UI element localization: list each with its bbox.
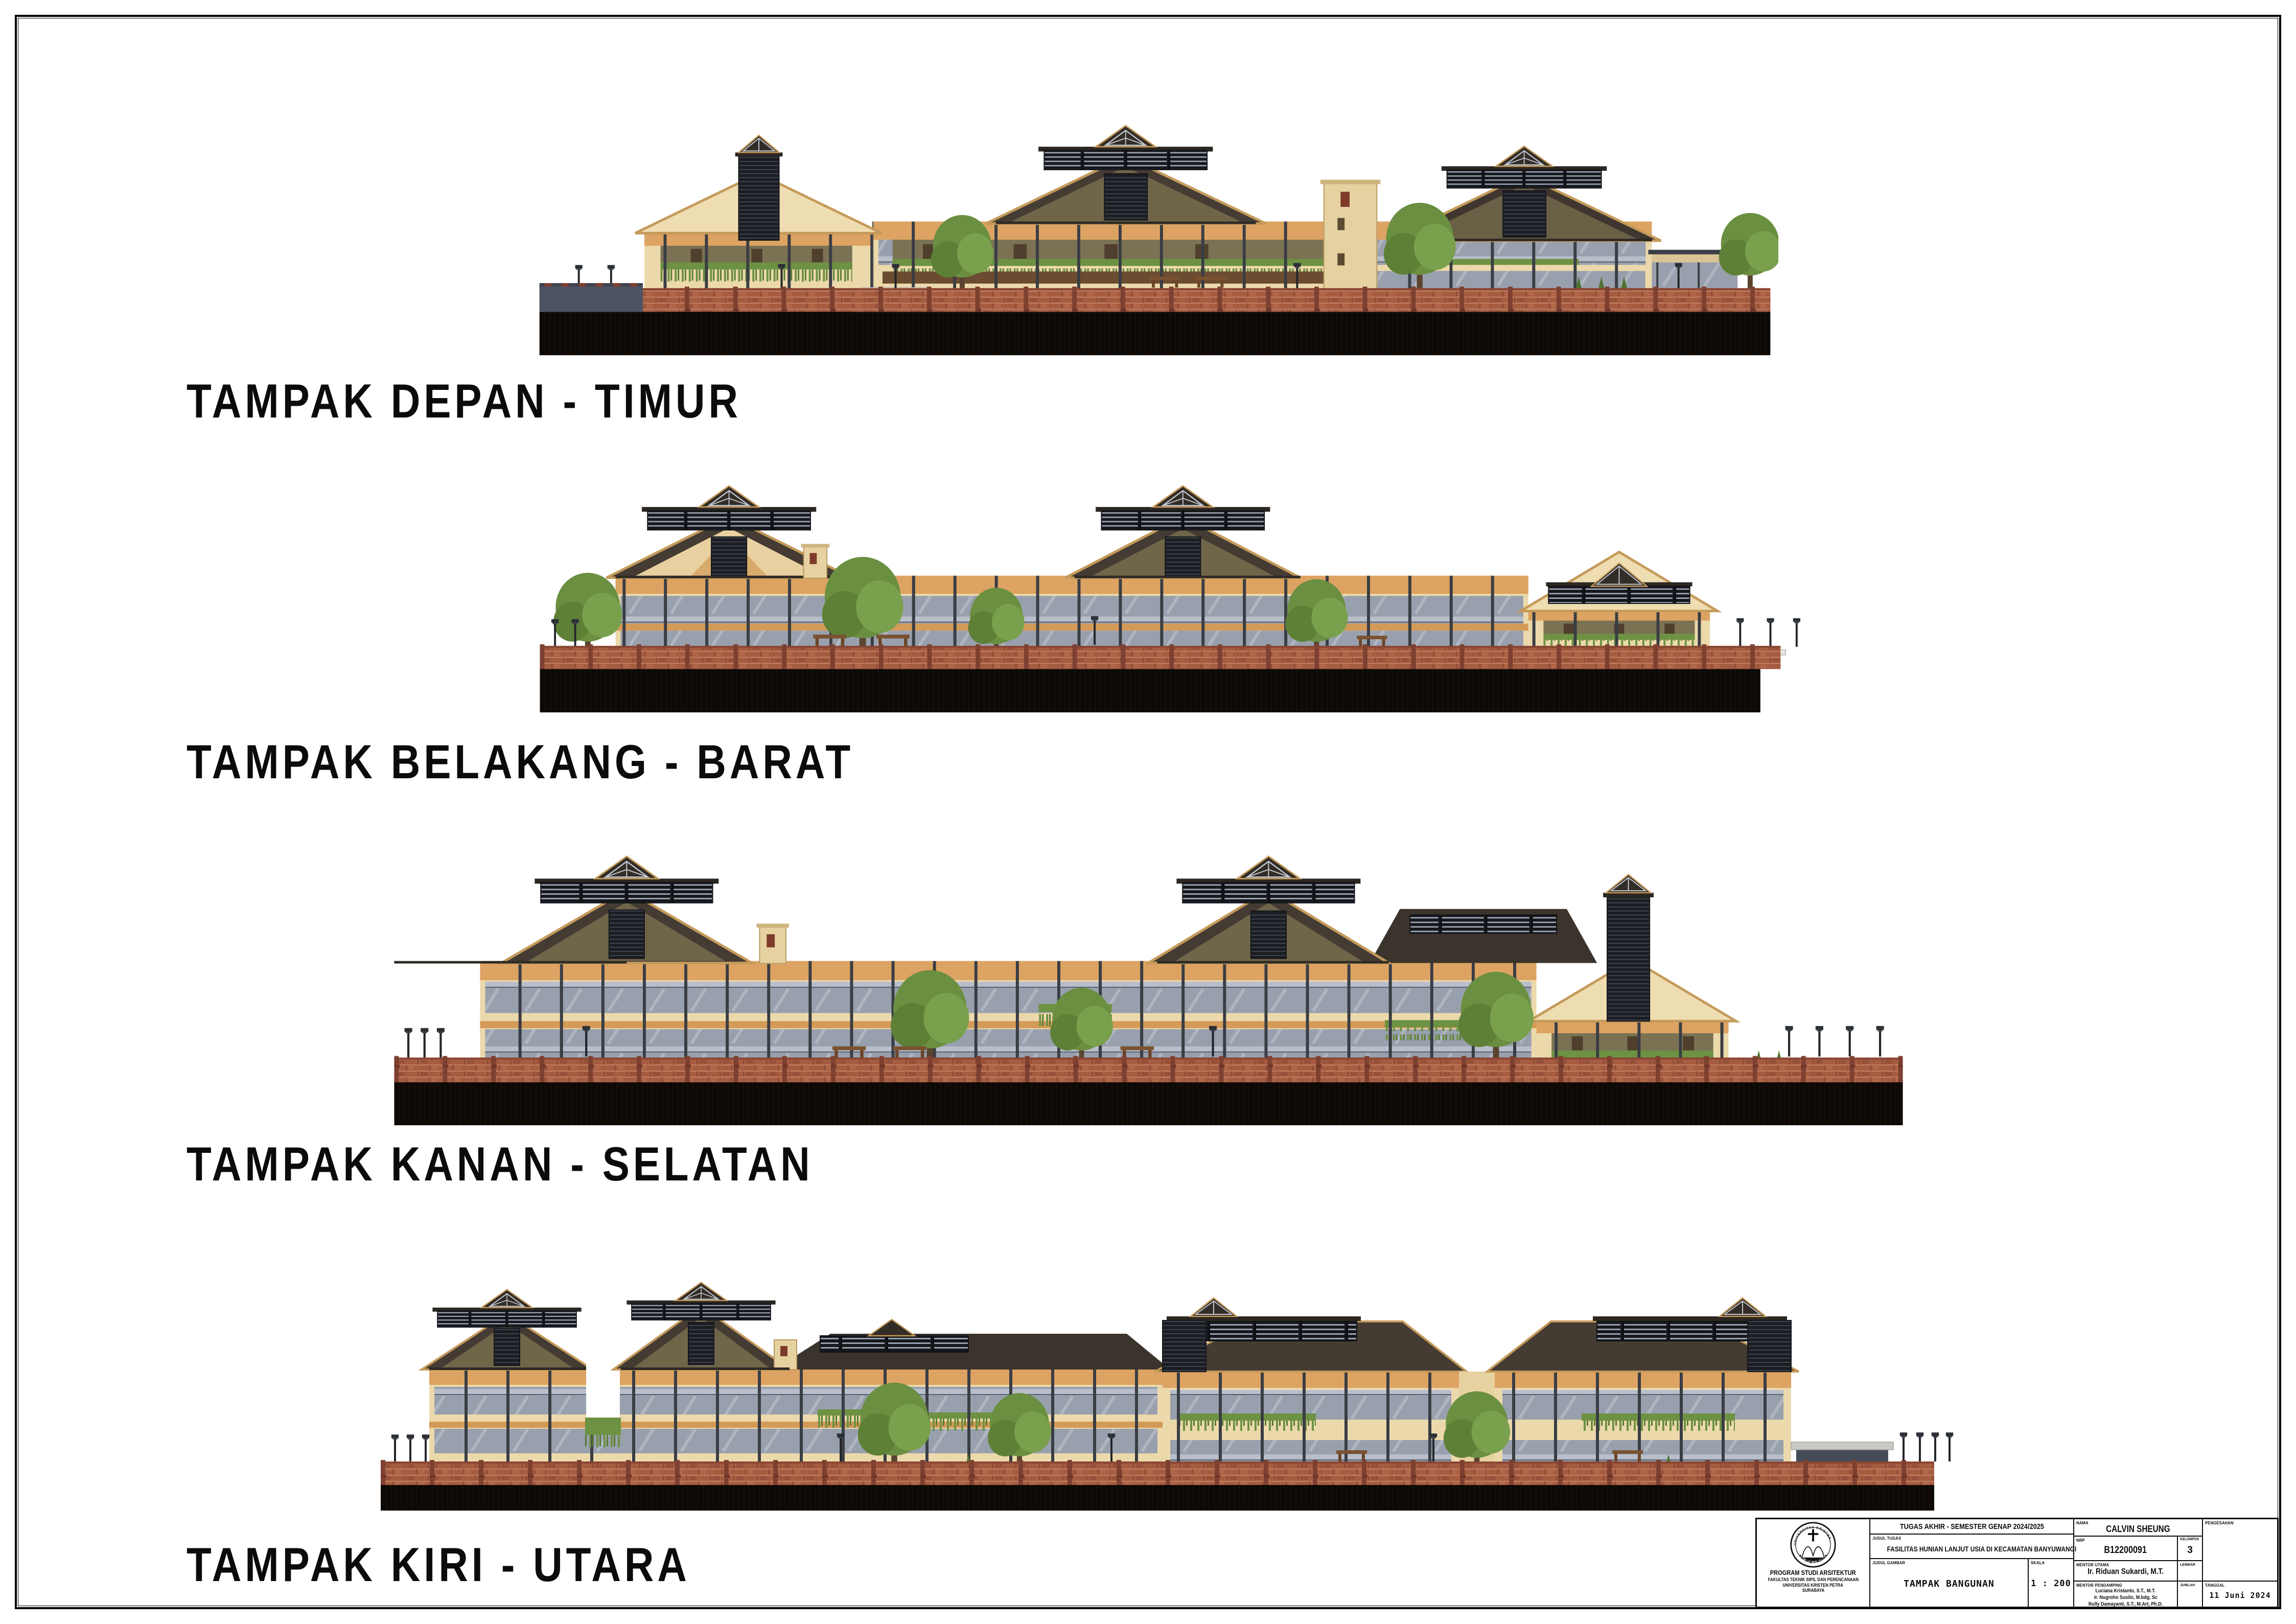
tower-a [422, 1290, 593, 1370]
skala-value: 1 : 200 [2029, 1579, 2073, 1589]
university-logo: UNIVERSITAS KRISTEN PETRA [1790, 1521, 1837, 1568]
lembar-label: LEMBAR [2180, 1562, 2195, 1567]
gable-side-house-1 [1155, 1298, 1467, 1464]
elevation-drawing-left-north [381, 1281, 1957, 1511]
ground [540, 669, 1760, 712]
roof-mid [774, 1319, 1170, 1370]
title-block: UNIVERSITAS KRISTEN PETRA PROGRAM STUDI … [1755, 1518, 2279, 1608]
tanggal-value: 11 Juni 2024 [2203, 1591, 2277, 1600]
fence [540, 283, 1771, 312]
tower-center [986, 126, 1266, 224]
pengesahan-label: PENGESAHAN [2205, 1520, 2234, 1525]
gable-house-right [1521, 552, 1718, 649]
lembar-cell: LEMBAR [2178, 1561, 2203, 1582]
drawing-sheet: TAMPAK DEPAN - TIMUR [0, 0, 2296, 1624]
elevation-label-left-north: TAMPAK KIRI - UTARA [187, 1537, 690, 1592]
judul-tugas-value: FASILITAS HUNIAN LANJUT USIA DI KECAMATA… [1887, 1545, 2076, 1553]
elevation-drawing-back-west [531, 484, 1819, 715]
facade-main [429, 1367, 1163, 1464]
stair-chimney [801, 544, 829, 578]
title-block-institution-cell: UNIVERSITAS KRISTEN PETRA PROGRAM STUDI … [1757, 1519, 1870, 1607]
project-header: TUGAS AKHIR - SEMESTER GENAP 2024/2025 [1899, 1522, 2044, 1531]
mentor-utama-label: MENTOR UTAMA [2076, 1562, 2109, 1567]
kelompok-label: KELOMPOK [2180, 1538, 2199, 1541]
kelompok-cell: KELOMPOK 3 [2178, 1537, 2203, 1561]
project-header-cell: TUGAS AKHIR - SEMESTER GENAP 2024/2025 [1870, 1519, 2074, 1535]
skala-label: SKALA [2031, 1560, 2045, 1565]
institution-line2: FAKULTAS TEKNIK SIPIL DAN PERENCANAAN [1768, 1577, 1858, 1583]
mentor-pendamping-2: Ir. Nugroho Susilo, M.bdg, Sc [2094, 1594, 2158, 1601]
judul-tugas-cell: JUDUL TUGAS FASILITAS HUNIAN LANJUT USIA… [1870, 1535, 2074, 1559]
nrp-label: NRP [2076, 1538, 2085, 1543]
nrp-value: B12200091 [2104, 1545, 2147, 1556]
fence [540, 644, 1781, 669]
stair-tower [1320, 180, 1380, 290]
institution-line4: SURABAYA [1802, 1588, 1824, 1593]
gable-house-right [1529, 874, 1736, 1070]
mentor-utama-value: Ir. Riduan Sukardi, M.T. [2088, 1567, 2164, 1576]
gable-house-left [635, 135, 882, 290]
tower-left [394, 856, 752, 964]
judul-tugas-label: JUDUL TUGAS [1872, 1536, 1901, 1541]
facade-main [480, 961, 1537, 1060]
elevation-label-back-west: TAMPAK BELAKANG - BARAT [187, 734, 854, 790]
elevation-right-south-svg [386, 849, 1911, 1125]
judul-gambar-value: TAMPAK BANGUNAN [1870, 1579, 2028, 1589]
kelompok-value: 3 [2178, 1545, 2202, 1556]
ground [394, 1082, 1903, 1125]
elevation-label-right-south: TAMPAK KANAN - SELATAN [187, 1136, 814, 1192]
fence [381, 1460, 1934, 1485]
nama-value: CALVIN SHEUNG [2106, 1524, 2170, 1535]
roof-rear [1370, 909, 1597, 963]
elevation-left-north-svg [381, 1281, 1957, 1511]
tower-center [1065, 486, 1301, 578]
jumlah-cell: JUMLAH [2178, 1582, 2203, 1607]
gable-side-house-2 [1487, 1298, 1799, 1464]
tanggal-cell: TANGGAL 11 Juni 2024 [2203, 1582, 2277, 1607]
elevation-label-front-east: TAMPAK DEPAN - TIMUR [187, 374, 741, 429]
mentor-pendamping-1: Luciana Kristanto, S.T., M.T. [2096, 1588, 2156, 1594]
ground [381, 1485, 1934, 1511]
judul-gambar-cell: JUDUL GAMBAR TAMPAK BANGUNAN [1870, 1559, 2029, 1607]
tower-b [613, 1283, 797, 1370]
nrp-cell: NRP B12200091 [2074, 1537, 2178, 1561]
judul-gambar-label: JUDUL GAMBAR [1872, 1560, 1905, 1565]
mentor-pendamping-cell: MENTOR PENDAMPING Luciana Kristanto, S.T… [2074, 1582, 2178, 1607]
elevation-front-east-svg [531, 124, 1778, 360]
jumlah-label: JUMLAH [2180, 1583, 2195, 1587]
tower-center [1148, 856, 1389, 964]
gap-between-towers [585, 1281, 621, 1447]
institution-line1: PROGRAM STUDI ARSITEKTUR [1770, 1569, 1856, 1577]
nama-cell: NAMA CALVIN SHEUNG [2074, 1519, 2203, 1537]
stair-chimney [757, 923, 789, 963]
fence [394, 1056, 1903, 1082]
elevation-drawing-front-east [531, 124, 1778, 360]
institution-text: PROGRAM STUDI ARSITEKTUR FAKULTAS TEKNIK… [1760, 1569, 1867, 1593]
mentor-pendamping-label: MENTOR PENDAMPING [2076, 1583, 2122, 1588]
skala-cell: SKALA 1 : 200 [2029, 1559, 2074, 1607]
facade-main [616, 576, 1528, 648]
institution-line3: UNIVERSITAS KRISTEN PETRA [1783, 1583, 1843, 1588]
mentor-utama-cell: MENTOR UTAMA Ir. Riduan Sukardi, M.T. [2074, 1561, 2178, 1582]
elevation-back-west-svg [531, 484, 1819, 715]
ground [540, 312, 1771, 355]
pengesahan-cell: PENGESAHAN [2203, 1519, 2277, 1582]
tanggal-label: TANGGAL [2205, 1583, 2225, 1588]
elevation-drawing-right-south [386, 849, 1911, 1125]
mentor-pendamping-3: Rully Damayanti, S.T., M.Art, Ph.D. [2089, 1601, 2163, 1608]
